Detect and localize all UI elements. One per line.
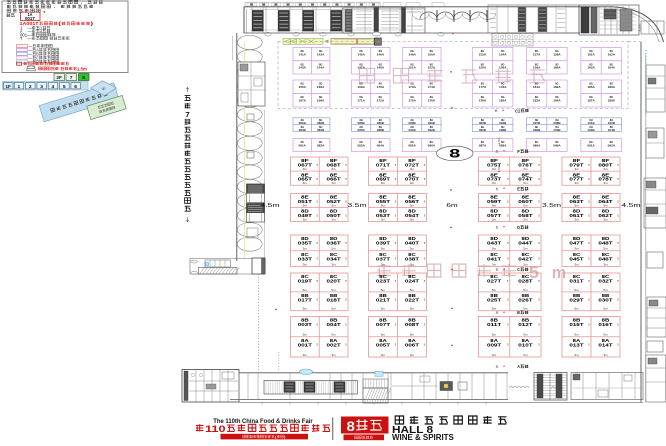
svg-text:028T: 028T	[518, 279, 532, 285]
svg-text:up: up	[102, 87, 106, 91]
svg-text:082A: 082A	[317, 144, 325, 148]
svg-text:008T: 008T	[405, 322, 419, 328]
svg-text:5: 5	[63, 84, 66, 89]
svg-text:5m: 5m	[381, 203, 386, 207]
svg-text:5m: 5m	[523, 333, 528, 337]
svg-text:3m: 3m	[523, 353, 528, 357]
svg-text:094B: 094B	[499, 121, 507, 125]
svg-text:3m: 3m	[303, 217, 308, 221]
svg-text:4.5m: 4.5m	[621, 203, 641, 209]
svg-text:5m: 5m	[492, 288, 497, 292]
svg-text:8E: 8E	[301, 172, 309, 177]
svg-text:086B: 086B	[377, 121, 385, 125]
svg-text:096B: 096B	[499, 128, 507, 132]
svg-text:167A: 167A	[299, 98, 307, 102]
svg-text:8F: 8F	[408, 158, 416, 163]
svg-text:8B: 8B	[330, 293, 338, 298]
svg-text:3m: 3m	[381, 181, 386, 185]
svg-text:145A: 145A	[357, 52, 365, 56]
svg-text:8C: 8C	[379, 252, 388, 257]
svg-text:8D: 8D	[330, 209, 338, 214]
svg-text:156A: 156A	[499, 66, 507, 70]
svg-text:8E: 8E	[602, 195, 610, 200]
svg-text:104B: 104B	[608, 128, 616, 132]
svg-text:149A: 149A	[408, 52, 416, 56]
svg-text:5m: 5m	[303, 203, 308, 207]
svg-text:8C: 8C	[490, 274, 499, 279]
svg-text:5m: 5m	[574, 288, 579, 292]
svg-text:3m: 3m	[603, 181, 608, 185]
svg-text:168A: 168A	[317, 98, 325, 102]
svg-text:8E: 8E	[379, 195, 387, 200]
svg-text:014T: 014T	[598, 342, 612, 348]
svg-text:087A: 087A	[479, 144, 487, 148]
svg-text:5m: 5m	[603, 288, 608, 292]
svg-text:8E: 8E	[330, 172, 338, 177]
svg-text:5m: 5m	[603, 333, 608, 337]
svg-text:8D: 8D	[379, 209, 387, 214]
svg-text:—: —	[27, 36, 33, 41]
svg-text:005T: 005T	[376, 342, 390, 348]
svg-text:3m: 3m	[381, 217, 386, 221]
svg-text:146A: 146A	[377, 52, 385, 56]
svg-text:8A: 8A	[573, 338, 582, 343]
svg-text:3.5m: 3.5m	[638, 24, 642, 31]
svg-text:031T: 031T	[569, 279, 583, 285]
svg-text:8C: 8C	[379, 274, 388, 279]
svg-text:083B: 083B	[299, 128, 307, 132]
svg-text:C1: C1	[515, 108, 521, 113]
svg-text:169A: 169A	[357, 85, 365, 89]
svg-text:8A: 8A	[602, 338, 611, 343]
svg-text:8D: 8D	[408, 209, 416, 214]
svg-text:089A: 089A	[533, 144, 541, 148]
svg-text:8C: 8C	[408, 274, 417, 279]
svg-text:8B: 8B	[408, 293, 416, 298]
svg-text:024T: 024T	[405, 279, 419, 285]
svg-text:8: 8	[449, 148, 461, 161]
svg-text:5m: 5m	[410, 333, 415, 337]
svg-text:5m: 5m	[603, 203, 608, 207]
svg-text:5m: 5m	[331, 203, 336, 207]
svg-text:5m: 5m	[381, 307, 386, 311]
svg-text:101B: 101B	[587, 121, 595, 125]
svg-text:4: 4	[52, 84, 55, 89]
svg-text:5m: 5m	[331, 307, 336, 311]
svg-text:110: 110	[205, 423, 226, 434]
svg-text:143A: 143A	[299, 66, 307, 70]
svg-text:171A: 171A	[357, 98, 365, 102]
svg-text:5m: 5m	[410, 307, 415, 311]
svg-text:8D: 8D	[602, 209, 610, 214]
svg-text:8E: 8E	[301, 195, 309, 200]
svg-text:3m: 3m	[492, 262, 497, 266]
svg-text:002T: 002T	[326, 342, 340, 348]
svg-text:8F: 8F	[379, 158, 387, 163]
svg-text:8B: 8B	[602, 293, 610, 298]
svg-text:097B: 097B	[533, 121, 541, 125]
svg-text:3m: 3m	[410, 353, 415, 357]
svg-text:8D: 8D	[602, 236, 610, 241]
svg-text:3m: 3m	[331, 181, 336, 185]
svg-text:8C: 8C	[330, 252, 339, 257]
svg-text:3m: 3m	[492, 353, 497, 357]
svg-text:176A: 176A	[428, 98, 436, 102]
svg-text:160A: 160A	[553, 66, 561, 70]
svg-text:003T: 003T	[298, 322, 312, 328]
svg-text:3: 3	[40, 84, 43, 89]
svg-text:5m: 5m	[331, 333, 336, 337]
svg-text:8E: 8E	[602, 172, 610, 177]
svg-text:161A: 161A	[587, 52, 595, 56]
svg-text:8A: 8A	[330, 338, 339, 343]
svg-text:6m: 6m	[446, 203, 458, 209]
svg-text:8B: 8B	[301, 318, 309, 323]
svg-text:170A: 170A	[377, 85, 385, 89]
svg-text:8A: 8A	[408, 338, 417, 343]
svg-text:5m: 5m	[523, 288, 528, 292]
svg-text:006T: 006T	[405, 342, 419, 348]
svg-text:8E: 8E	[330, 195, 338, 200]
svg-text:8A: 8A	[379, 338, 388, 343]
svg-text:8B: 8B	[490, 318, 498, 323]
svg-text:8B: 8B	[573, 318, 581, 323]
svg-text:5m: 5m	[603, 307, 608, 311]
svg-text:3m: 3m	[492, 181, 497, 185]
svg-text:100B: 100B	[553, 128, 561, 132]
svg-text:8F: 8F	[602, 158, 610, 163]
svg-text:155A: 155A	[479, 66, 487, 70]
svg-text:179A: 179A	[479, 98, 487, 102]
svg-text:081A: 081A	[299, 144, 307, 148]
svg-text:8E: 8E	[522, 195, 530, 200]
svg-text:087B: 087B	[358, 128, 366, 132]
svg-text:021T: 021T	[376, 297, 390, 303]
svg-text:8D: 8D	[330, 236, 338, 241]
svg-text:A: A	[40, 29, 43, 34]
svg-text:091A: 091A	[587, 144, 595, 148]
svg-text:8A: 8A	[490, 338, 499, 343]
svg-text:3m: 3m	[410, 262, 415, 266]
svg-text:3m: 3m	[523, 167, 528, 171]
svg-text:8C: 8C	[301, 252, 310, 257]
svg-text:092B: 092B	[428, 128, 436, 132]
svg-text:8F: 8F	[522, 158, 530, 163]
svg-text:153A: 153A	[479, 52, 487, 56]
svg-text:8D: 8D	[490, 209, 498, 214]
svg-text:157A: 157A	[533, 52, 541, 56]
svg-text:3m: 3m	[410, 167, 415, 171]
svg-text:4.5m: 4.5m	[260, 203, 280, 209]
svg-text:163A: 163A	[587, 66, 595, 70]
svg-text:150A: 150A	[428, 52, 436, 56]
svg-text:090B: 090B	[428, 121, 436, 125]
svg-text:098B: 098B	[553, 121, 561, 125]
svg-text:): )	[284, 435, 286, 439]
svg-text:8: 8	[347, 418, 356, 434]
svg-text:010T: 010T	[518, 342, 532, 348]
svg-text:m: m	[552, 263, 566, 282]
svg-text:WINE & SPIRITS: WINE & SPIRITS	[392, 433, 454, 442]
svg-text:3m: 3m	[523, 217, 528, 221]
svg-text:185A: 185A	[587, 85, 595, 89]
svg-text:147A: 147A	[357, 66, 365, 70]
svg-text:3m: 3m	[574, 167, 579, 171]
svg-text:5m: 5m	[410, 203, 415, 207]
svg-text:8A: 8A	[301, 338, 310, 343]
svg-text:5m: 5m	[410, 247, 415, 251]
svg-text:3m: 3m	[331, 353, 336, 357]
svg-text:3m: 3m	[303, 262, 308, 266]
svg-text:5m: 5m	[410, 288, 415, 292]
svg-text:180A: 180A	[499, 98, 507, 102]
svg-text:016T: 016T	[598, 322, 612, 328]
svg-text:8B: 8B	[408, 318, 416, 323]
svg-text:1.5m: 1.5m	[77, 66, 87, 71]
svg-text:165A: 165A	[299, 85, 307, 89]
svg-text:5m: 5m	[574, 307, 579, 311]
svg-text:8D: 8D	[522, 236, 530, 241]
svg-text:5m: 5m	[303, 333, 308, 337]
svg-text:013T: 013T	[569, 342, 583, 348]
svg-text:8B: 8B	[379, 293, 387, 298]
svg-text:103B: 103B	[587, 128, 595, 132]
svg-text:8C: 8C	[573, 252, 582, 257]
svg-text:5m: 5m	[492, 203, 497, 207]
svg-text:3m: 3m	[303, 167, 308, 171]
svg-text:8C: 8C	[330, 274, 339, 279]
svg-text:023T: 023T	[376, 279, 390, 285]
svg-text:158A: 158A	[553, 52, 561, 56]
svg-text:7: 7	[70, 75, 73, 80]
svg-text:8F: 8F	[573, 158, 581, 163]
svg-text:020T: 020T	[326, 279, 340, 285]
svg-text:8E: 8E	[573, 195, 581, 200]
svg-text:3m: 3m	[603, 217, 608, 221]
svg-text:E: E	[517, 187, 520, 192]
svg-text:159A: 159A	[533, 66, 541, 70]
svg-text:8D: 8D	[301, 236, 309, 241]
svg-text:183A: 183A	[533, 98, 541, 102]
svg-text:5m: 5m	[574, 203, 579, 207]
svg-text:F: F	[517, 149, 520, 154]
svg-text:082B: 082B	[317, 121, 325, 125]
svg-text:093B: 093B	[479, 121, 487, 125]
svg-text:8D: 8D	[301, 209, 309, 214]
svg-text:8E: 8E	[408, 195, 416, 200]
svg-text:5m: 5m	[331, 288, 336, 292]
svg-text:3m: 3m	[410, 181, 415, 185]
svg-text:8B: 8B	[573, 293, 581, 298]
svg-text:1.5m: 1.5m	[497, 165, 501, 172]
svg-text:8D: 8D	[573, 236, 581, 241]
svg-text:8F: 8F	[330, 158, 338, 163]
svg-text:162A: 162A	[608, 52, 616, 56]
svg-text:018T: 018T	[326, 297, 340, 303]
svg-text:083A: 083A	[357, 144, 365, 148]
svg-text:8B: 8B	[602, 318, 610, 323]
svg-text:8E: 8E	[408, 172, 416, 177]
svg-text:8F: 8F	[490, 158, 498, 163]
svg-text:5m: 5m	[303, 288, 308, 292]
svg-text:152A: 152A	[428, 66, 436, 70]
svg-text:081B: 081B	[299, 121, 307, 125]
svg-text:174A: 174A	[428, 85, 436, 89]
svg-text:141A: 141A	[299, 52, 307, 56]
svg-text:188A: 188A	[608, 98, 616, 102]
svg-text:3.5m: 3.5m	[542, 203, 562, 209]
svg-text:8B: 8B	[379, 318, 387, 323]
svg-text:8B: 8B	[330, 318, 338, 323]
svg-text:027T: 027T	[487, 279, 501, 285]
svg-text:164A: 164A	[608, 66, 616, 70]
svg-text:8E: 8E	[379, 172, 387, 177]
svg-text:091B: 091B	[409, 128, 417, 132]
svg-text:022T: 022T	[405, 297, 419, 303]
svg-text:5m: 5m	[492, 247, 497, 251]
svg-text:5m: 5m	[303, 307, 308, 311]
svg-text:8A: 8A	[522, 338, 531, 343]
svg-text:029T: 029T	[569, 297, 583, 303]
svg-text:032T: 032T	[598, 279, 612, 285]
svg-text:1F: 1F	[6, 84, 12, 89]
svg-text:012T: 012T	[518, 322, 532, 328]
svg-text:8C: 8C	[522, 252, 531, 257]
svg-text:8B: 8B	[301, 293, 309, 298]
svg-text:181A: 181A	[533, 85, 541, 89]
svg-text:5m: 5m	[523, 203, 528, 207]
svg-text:8D: 8D	[408, 236, 416, 241]
svg-text:8D: 8D	[522, 209, 530, 214]
svg-text:D: D	[517, 225, 520, 230]
svg-text:089B: 089B	[409, 121, 417, 125]
svg-text:086A: 086A	[428, 144, 436, 148]
svg-text:5m: 5m	[492, 333, 497, 337]
svg-text:015T: 015T	[569, 322, 583, 328]
svg-text:085B: 085B	[358, 121, 366, 125]
svg-text:B: B	[517, 310, 520, 315]
svg-text:8E: 8E	[573, 172, 581, 177]
svg-text:3m: 3m	[303, 353, 308, 357]
svg-text:151A: 151A	[408, 66, 416, 70]
svg-text:3m: 3m	[331, 167, 336, 171]
svg-text:8C: 8C	[490, 252, 499, 257]
svg-text:8C: 8C	[301, 274, 310, 279]
svg-text:102B: 102B	[608, 121, 616, 125]
svg-text:144A: 144A	[317, 66, 325, 70]
svg-text:8: 8	[82, 75, 85, 80]
svg-text:5m: 5m	[523, 307, 528, 311]
svg-text:3m: 3m	[574, 181, 579, 185]
svg-text:184A: 184A	[553, 98, 561, 102]
svg-text:166A: 166A	[317, 85, 325, 89]
svg-text:026T: 026T	[518, 297, 532, 303]
svg-text:092A: 092A	[608, 144, 616, 148]
svg-text:3m: 3m	[603, 353, 608, 357]
svg-text:3m: 3m	[410, 217, 415, 221]
svg-text:8B: 8B	[522, 318, 530, 323]
svg-text:3.5m: 3.5m	[347, 203, 367, 209]
svg-text:177A: 177A	[479, 85, 487, 89]
svg-text:3m: 3m	[303, 181, 308, 185]
svg-text:3m: 3m	[603, 262, 608, 266]
svg-text:8C: 8C	[602, 274, 611, 279]
svg-text:2: 2	[29, 84, 32, 89]
svg-text:5m: 5m	[381, 247, 386, 251]
svg-text:009T: 009T	[487, 342, 501, 348]
svg-text:004T: 004T	[326, 322, 340, 328]
svg-text:5m: 5m	[303, 247, 308, 251]
svg-text:011T: 011T	[487, 322, 501, 328]
svg-text:085A: 085A	[408, 144, 416, 148]
svg-text:090A: 090A	[553, 144, 561, 148]
svg-text:187A: 187A	[587, 98, 595, 102]
svg-text:030T: 030T	[598, 297, 612, 303]
svg-text:3m: 3m	[381, 353, 386, 357]
svg-text:088B: 088B	[377, 128, 385, 132]
svg-text:3m: 3m	[492, 217, 497, 221]
svg-text:7: 7	[185, 110, 189, 119]
svg-text:6: 6	[74, 84, 77, 89]
svg-text:017T: 017T	[298, 297, 312, 303]
svg-text:019T: 019T	[298, 279, 312, 285]
svg-text:3m: 3m	[574, 262, 579, 266]
svg-text:3m: 3m	[603, 167, 608, 171]
svg-text:001T: 001T	[298, 342, 312, 348]
svg-text:5m: 5m	[574, 247, 579, 251]
svg-text:007T: 007T	[376, 322, 390, 328]
svg-text:5m: 5m	[523, 247, 528, 251]
svg-text:3.5m: 3.5m	[497, 137, 501, 144]
svg-text:1: 1	[18, 84, 21, 89]
svg-text:8C: 8C	[602, 252, 611, 257]
svg-text:8D: 8D	[379, 236, 387, 241]
svg-text:3m: 3m	[574, 217, 579, 221]
svg-text:186A: 186A	[608, 85, 616, 89]
svg-text:178A: 178A	[499, 85, 507, 89]
svg-text:3m: 3m	[523, 181, 528, 185]
svg-text:8D: 8D	[573, 209, 581, 214]
svg-text:173A: 173A	[408, 85, 416, 89]
svg-text:3m: 3m	[381, 167, 386, 171]
svg-text:5m: 5m	[331, 247, 336, 251]
svg-text:3m: 3m	[523, 262, 528, 266]
svg-text:3m: 3m	[331, 262, 336, 266]
svg-text:8D: 8D	[490, 236, 498, 241]
svg-text:172A: 172A	[377, 98, 385, 102]
svg-text:2F: 2F	[56, 75, 62, 80]
svg-text:3m: 3m	[574, 353, 579, 357]
svg-text:3m: 3m	[381, 262, 386, 266]
svg-text:3m: 3m	[331, 217, 336, 221]
svg-text:8B: 8B	[490, 293, 498, 298]
svg-text:142A: 142A	[317, 52, 325, 56]
svg-text:084A: 084A	[377, 144, 385, 148]
svg-text:5m: 5m	[603, 247, 608, 251]
svg-text:5m: 5m	[381, 288, 386, 292]
svg-text:182A: 182A	[553, 85, 561, 89]
svg-text:5m: 5m	[492, 307, 497, 311]
svg-text:8B: 8B	[522, 293, 530, 298]
svg-text:148A: 148A	[377, 66, 385, 70]
svg-text:5m: 5m	[574, 333, 579, 337]
svg-text:8F: 8F	[301, 158, 309, 163]
svg-text:8E: 8E	[522, 172, 530, 177]
svg-text:5m: 5m	[381, 333, 386, 337]
svg-text:8C: 8C	[522, 274, 531, 279]
svg-text:095B: 095B	[479, 128, 487, 132]
svg-text:175A: 175A	[408, 98, 416, 102]
